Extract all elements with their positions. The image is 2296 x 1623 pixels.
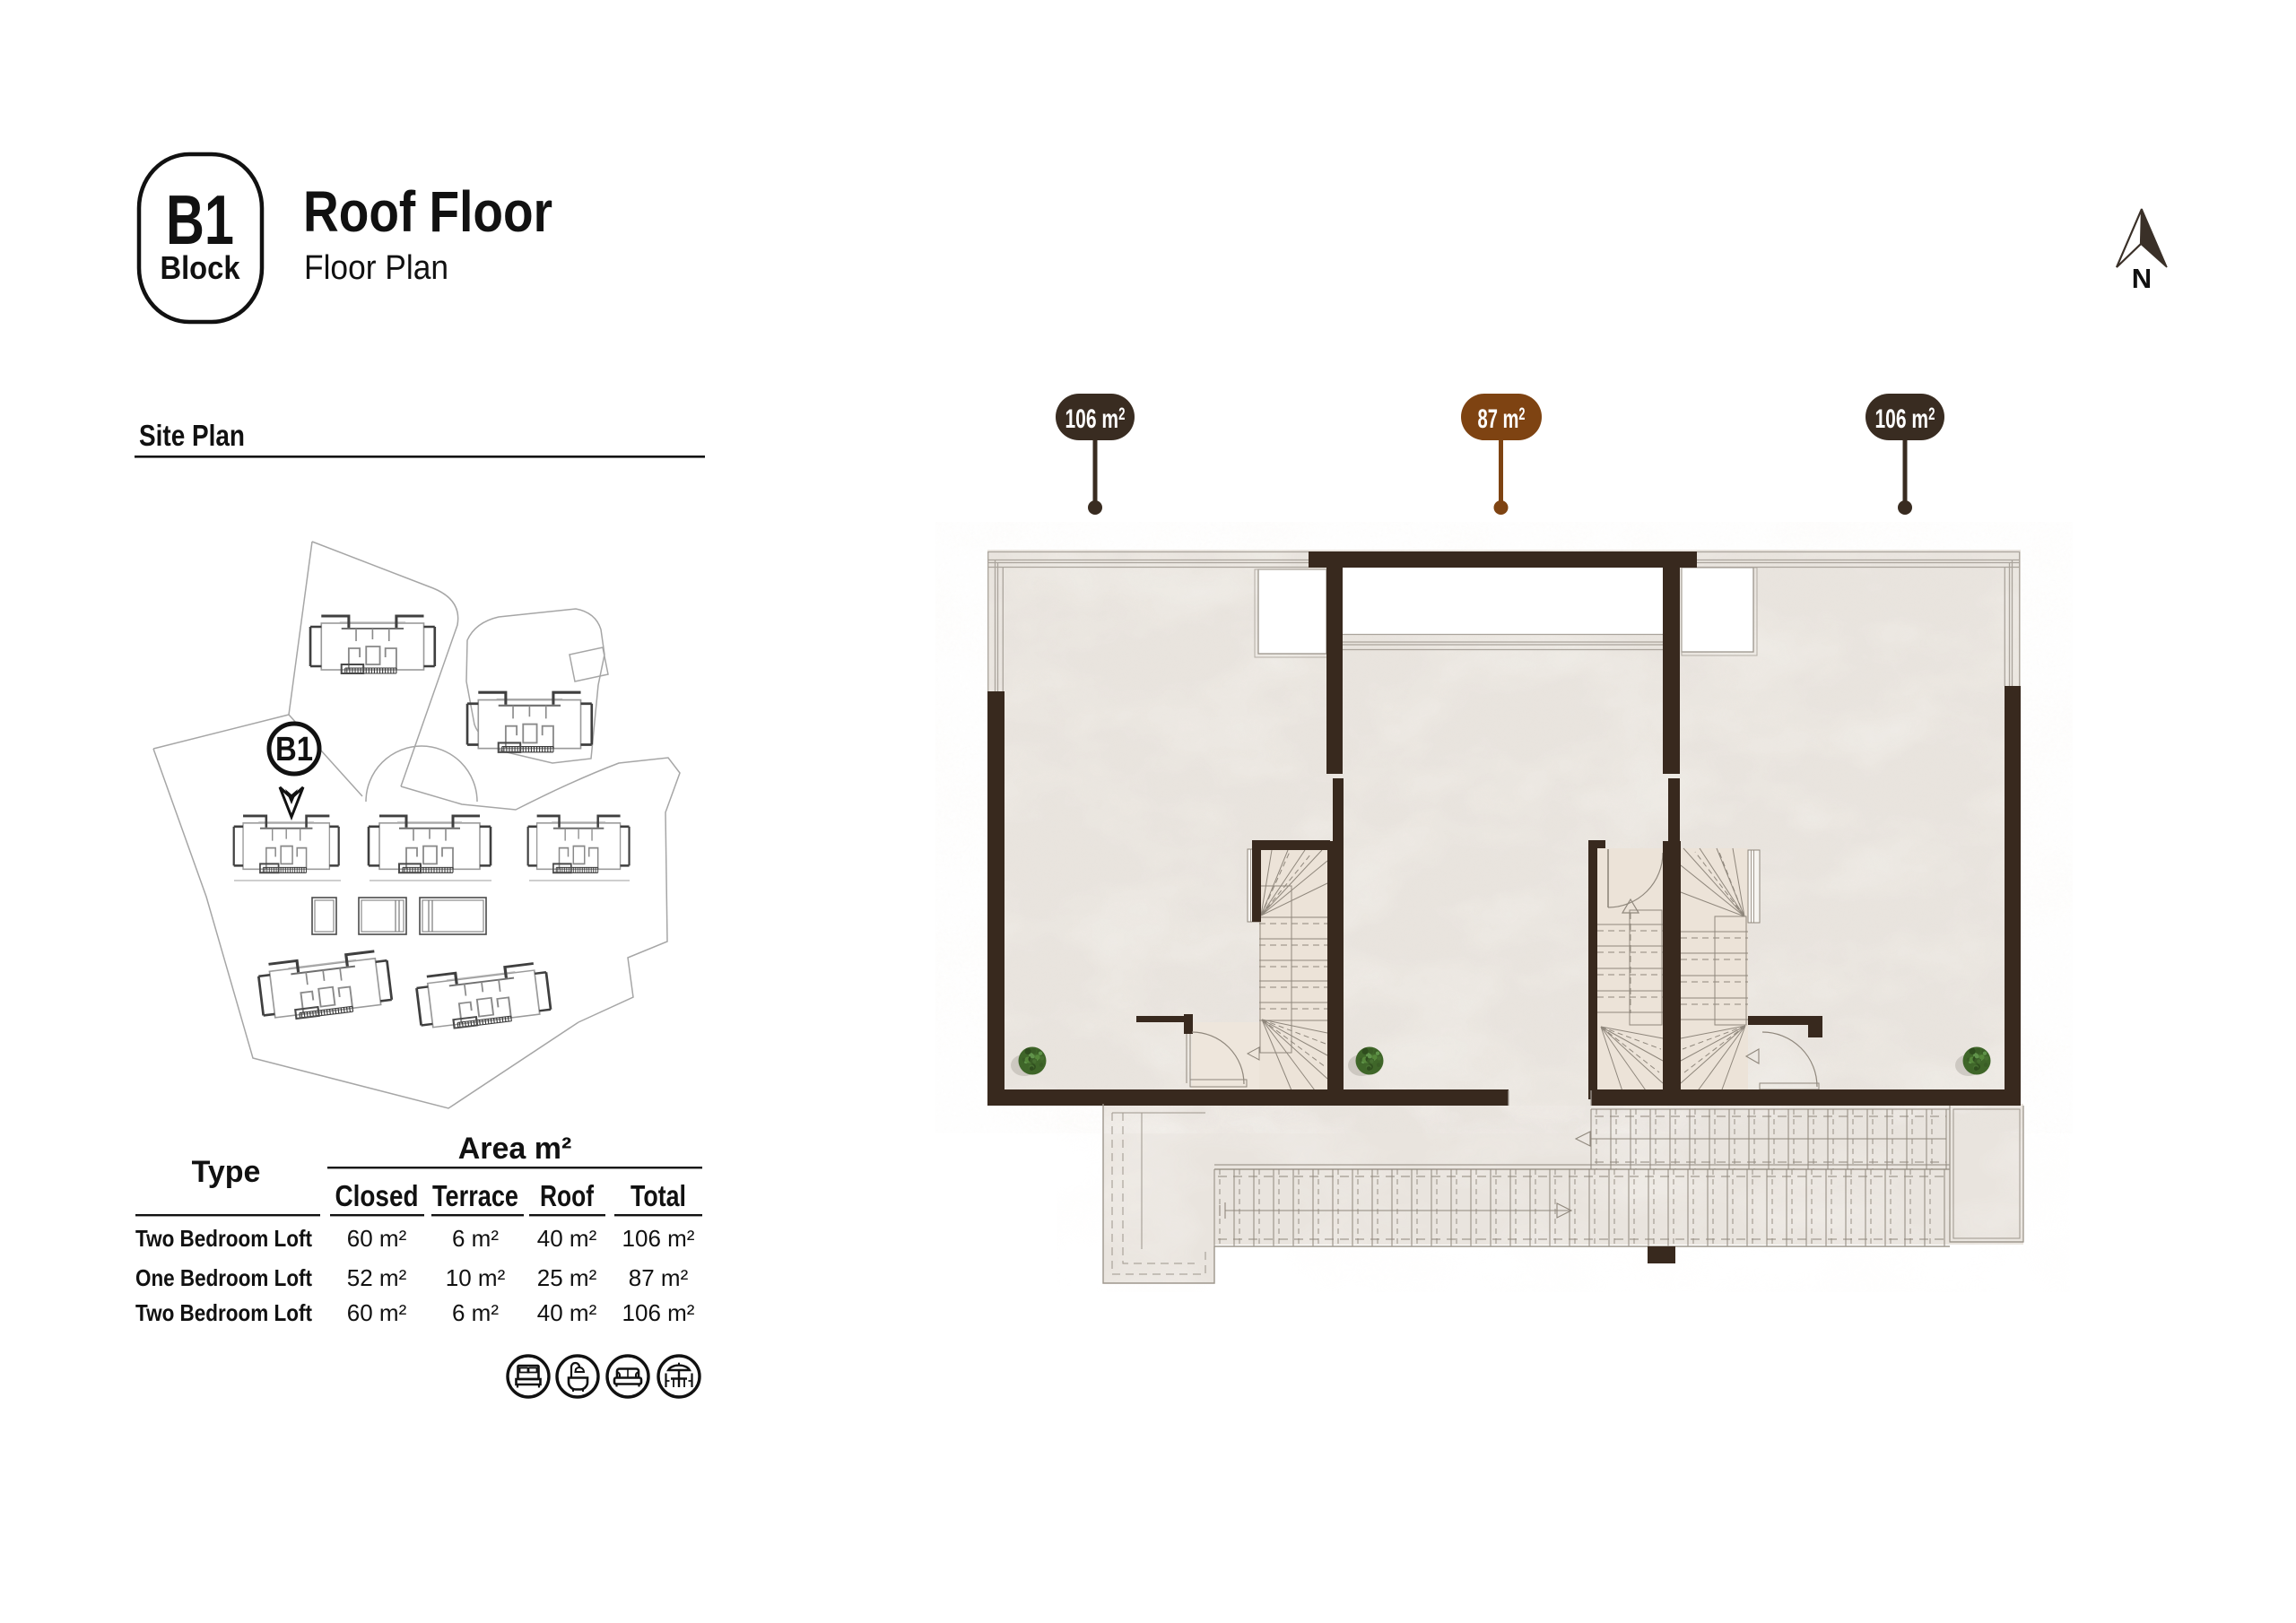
svg-text:106 m2: 106 m2 xyxy=(1065,404,1126,434)
svg-text:40 m²: 40 m² xyxy=(537,1225,597,1252)
svg-text:Two Bedroom Loft: Two Bedroom Loft xyxy=(135,1299,312,1326)
svg-text:Roof Floor: Roof Floor xyxy=(303,179,552,244)
svg-text:Area m²: Area m² xyxy=(458,1132,572,1166)
svg-text:60 m²: 60 m² xyxy=(347,1225,407,1252)
svg-text:6 m²: 6 m² xyxy=(452,1225,499,1252)
svg-text:Total: Total xyxy=(631,1179,686,1212)
svg-text:Floor Plan: Floor Plan xyxy=(304,249,448,287)
svg-text:10 m²: 10 m² xyxy=(446,1264,506,1291)
svg-text:Site Plan: Site Plan xyxy=(139,419,245,452)
svg-text:B1: B1 xyxy=(166,180,234,259)
svg-text:Two Bedroom Loft: Two Bedroom Loft xyxy=(135,1225,312,1252)
svg-text:25 m²: 25 m² xyxy=(537,1264,597,1291)
svg-text:N: N xyxy=(2132,263,2152,294)
svg-text:52 m²: 52 m² xyxy=(347,1264,407,1291)
svg-text:60 m²: 60 m² xyxy=(347,1299,407,1326)
svg-text:106 m2: 106 m2 xyxy=(1875,404,1935,434)
svg-text:87 m²: 87 m² xyxy=(629,1264,689,1291)
svg-text:87 m2: 87 m2 xyxy=(1478,404,1526,434)
svg-text:6 m²: 6 m² xyxy=(452,1299,499,1326)
svg-text:40 m²: 40 m² xyxy=(537,1299,597,1326)
svg-text:Roof: Roof xyxy=(540,1179,595,1212)
svg-text:One Bedroom Loft: One Bedroom Loft xyxy=(135,1264,312,1291)
svg-text:Block: Block xyxy=(161,249,241,286)
svg-text:106 m²: 106 m² xyxy=(622,1299,695,1326)
svg-text:Type: Type xyxy=(192,1155,261,1189)
svg-text:Terrace: Terrace xyxy=(432,1179,518,1212)
svg-text:106 m²: 106 m² xyxy=(622,1225,695,1252)
svg-text:Closed: Closed xyxy=(335,1179,419,1212)
svg-text:B1: B1 xyxy=(275,731,313,768)
